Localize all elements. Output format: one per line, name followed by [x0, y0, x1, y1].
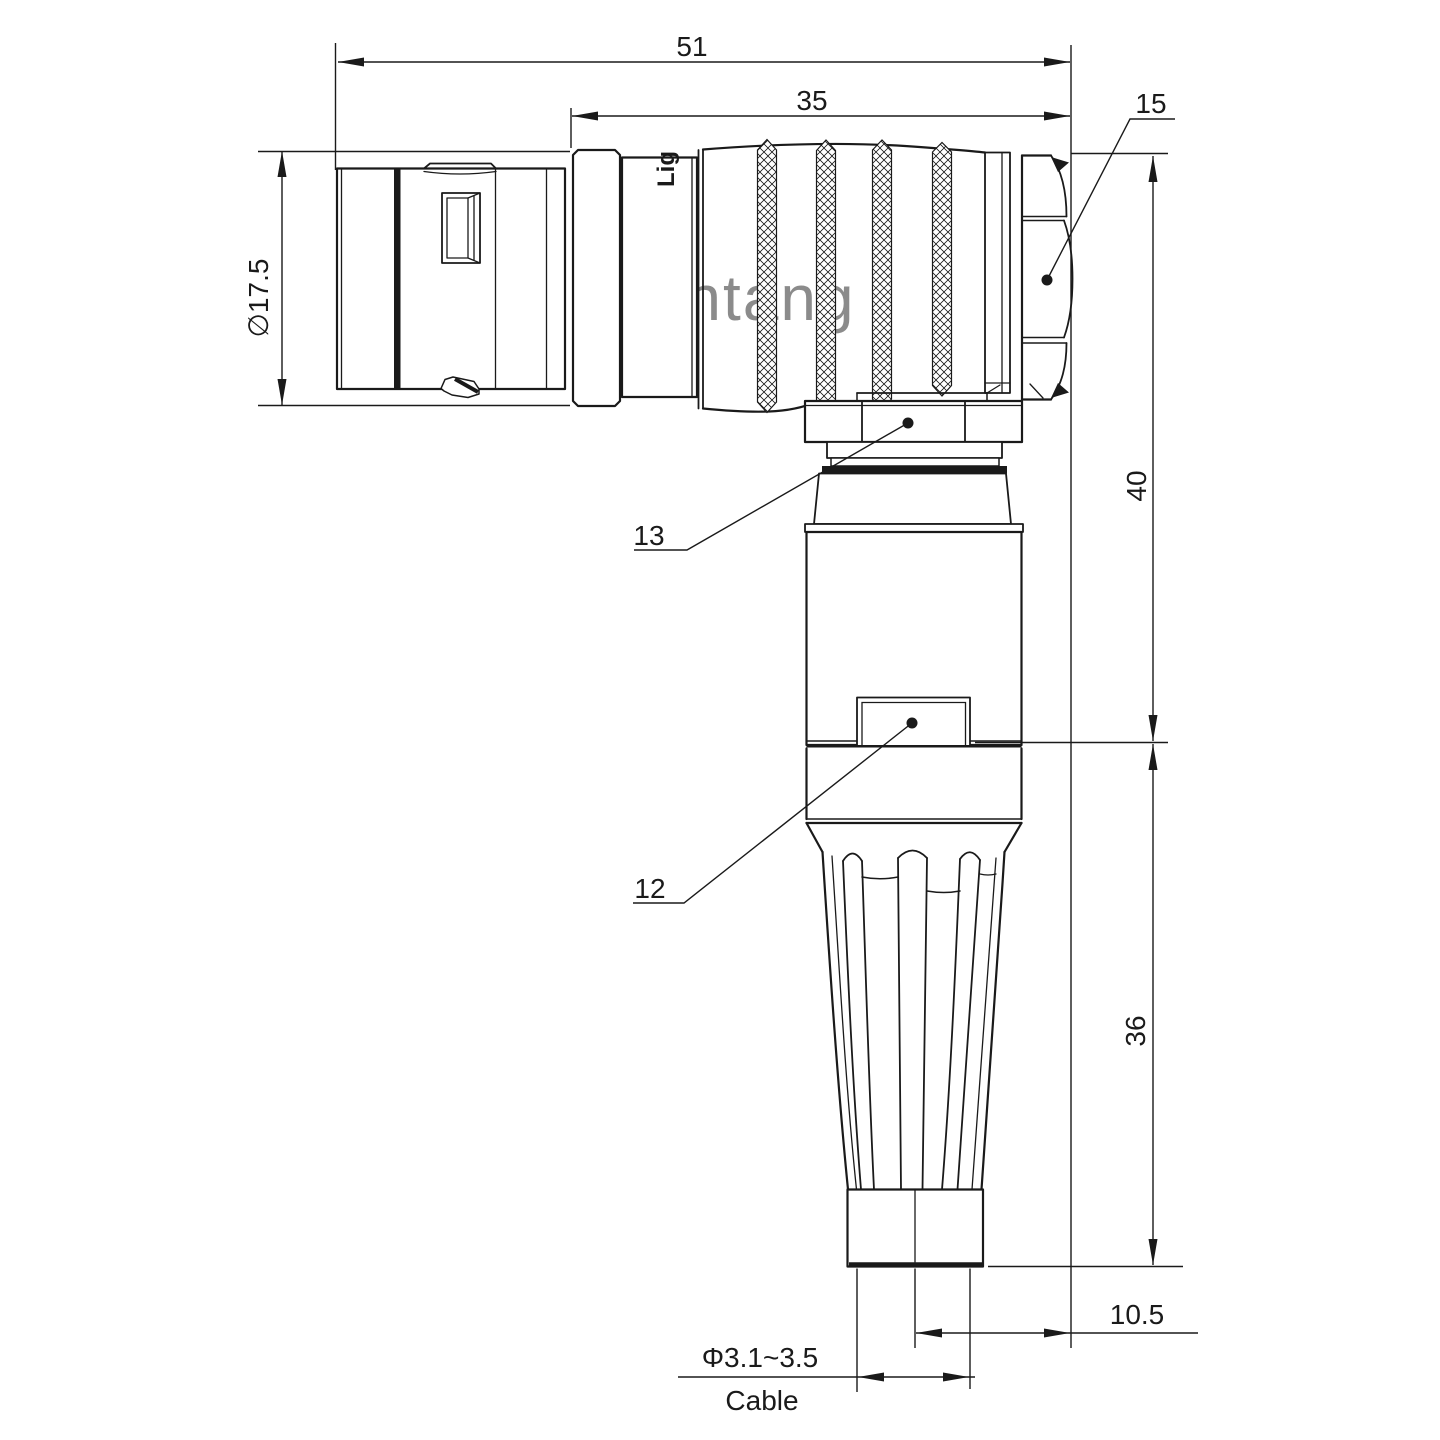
- shell-front-ring: [573, 150, 620, 406]
- part-marking-text: Lig: [653, 151, 680, 187]
- end-ring: [985, 153, 1010, 394]
- dim-35-value: 35: [796, 85, 827, 116]
- dim-51-value: 51: [676, 31, 707, 62]
- callout-15-backshell-nut: 15: [1042, 88, 1176, 286]
- callout-13-value: 13: [633, 520, 664, 551]
- plug-barrel: [337, 164, 565, 398]
- dim-front-length-35: 35: [571, 85, 1070, 148]
- connector-body: [807, 532, 1022, 746]
- boot-ribs: [843, 851, 996, 1190]
- callout-15-value: 15: [1135, 88, 1166, 119]
- callout-12-value: 12: [634, 873, 665, 904]
- knurl-band-2: [817, 140, 836, 416]
- leader-dot-12: [907, 718, 918, 729]
- collar-ring: Lig: [622, 151, 697, 397]
- dim-cable-diameter: Φ3.1~3.5 Cable: [678, 1342, 975, 1416]
- cable-caption: Cable: [725, 1385, 798, 1416]
- leader-dot-15: [1042, 275, 1053, 286]
- technical-drawing: Lightang: [0, 0, 1440, 1440]
- coupling-nut: [805, 401, 1022, 442]
- dim-offset-10-5: 10.5: [916, 1299, 1198, 1338]
- cable-ferrule: [848, 1190, 984, 1267]
- leader-dot-13: [903, 418, 914, 429]
- dim-36-value: 36: [1120, 1015, 1151, 1046]
- cable: [857, 1269, 970, 1393]
- o-ring-groove: [822, 466, 1007, 474]
- knurl-band-3: [873, 140, 892, 410]
- dim-diameter-value: ∅17.5: [243, 259, 274, 338]
- neck-rings: [805, 442, 1023, 532]
- knurl-band-1: [758, 140, 777, 413]
- knurl-band-4: [933, 143, 952, 397]
- strain-relief-boot: [807, 749, 1022, 1267]
- dim-cable-diameter-value: Φ3.1~3.5: [702, 1342, 819, 1373]
- key-window: [442, 193, 480, 263]
- dim-10-5-value: 10.5: [1110, 1299, 1165, 1330]
- dim-40-value: 40: [1121, 470, 1152, 501]
